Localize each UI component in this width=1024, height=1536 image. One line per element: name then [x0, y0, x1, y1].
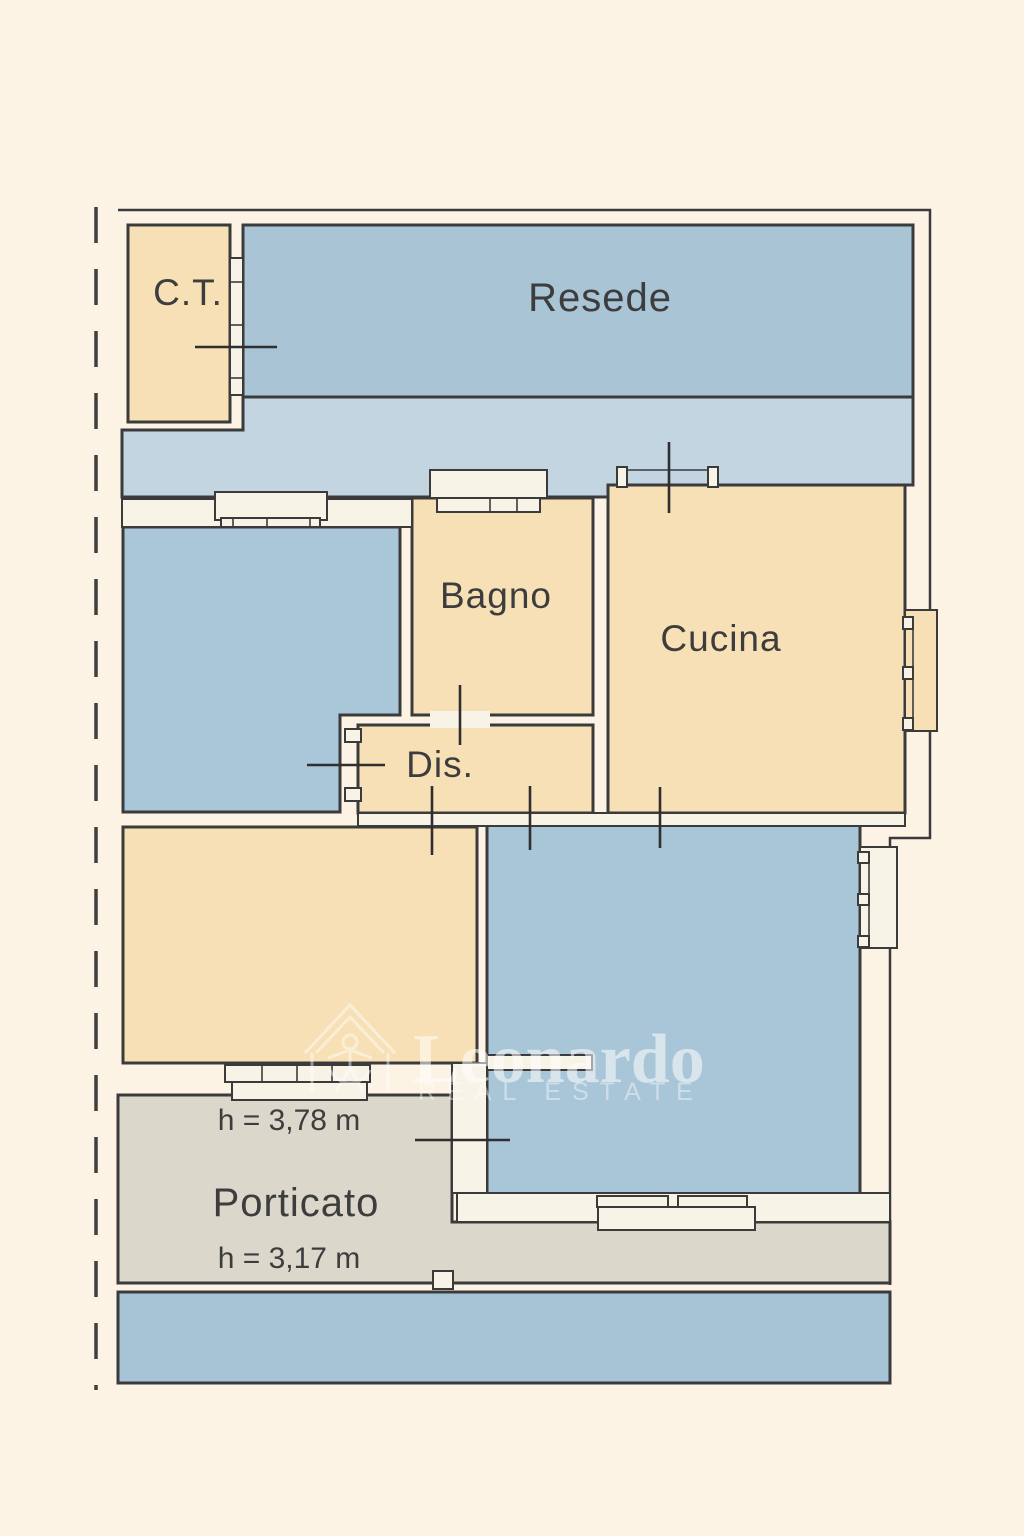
bottom-left-window-sill	[232, 1082, 367, 1100]
cucina-bay-tick-2	[903, 667, 913, 679]
label-height-porticato: h = 3,17 m	[218, 1242, 361, 1275]
bagno-window-sill	[437, 498, 540, 512]
room-bottom-strip	[118, 1292, 890, 1383]
dis-wall-opening-1	[345, 729, 361, 742]
room-bottom-right	[487, 825, 860, 1195]
label-porticato: Porticato	[213, 1181, 380, 1225]
ct-right-wall	[230, 258, 243, 395]
label-cucina: Cucina	[660, 618, 781, 659]
label-resede: Resede	[528, 276, 672, 320]
label-dis: Dis.	[406, 744, 474, 785]
watermark: Leonardo REAL ESTATE	[305, 1005, 705, 1106]
bottom-window-pane-2	[678, 1196, 747, 1207]
room-ct	[128, 225, 230, 422]
floor-plan-page: Leonardo REAL ESTATE C.T. Resede Bagno C…	[0, 0, 1024, 1536]
cucina-entry-jamb-right	[708, 467, 718, 487]
bottom-window-pane-1	[597, 1196, 668, 1207]
label-height-upper: h = 3,78 m	[218, 1104, 361, 1137]
cucina-bay-tick-3	[903, 718, 913, 730]
lower-wall-band	[358, 813, 905, 826]
floor-plan-drawing: Leonardo REAL ESTATE C.T. Resede Bagno C…	[0, 0, 1024, 1536]
bottom-window-sill	[598, 1207, 755, 1230]
porticato-pillar	[433, 1271, 453, 1289]
cucina-bay-tick-1	[903, 617, 913, 629]
label-bagno: Bagno	[440, 575, 552, 616]
bagno-window-frame	[430, 470, 547, 498]
cucina-entry-jamb-left	[617, 467, 627, 487]
label-ct: C.T.	[153, 272, 223, 313]
bottom-right-bay-tick-2	[858, 894, 869, 905]
room-dis	[358, 725, 593, 813]
dis-wall-opening-2	[345, 788, 361, 801]
bottom-right-bay-tick-3	[858, 936, 869, 947]
watermark-tagline-text: REAL ESTATE	[418, 1078, 704, 1106]
mid-left-window-sill	[221, 518, 320, 527]
bottom-right-bay-tick-1	[858, 852, 869, 863]
mid-left-window-frame	[215, 492, 327, 520]
